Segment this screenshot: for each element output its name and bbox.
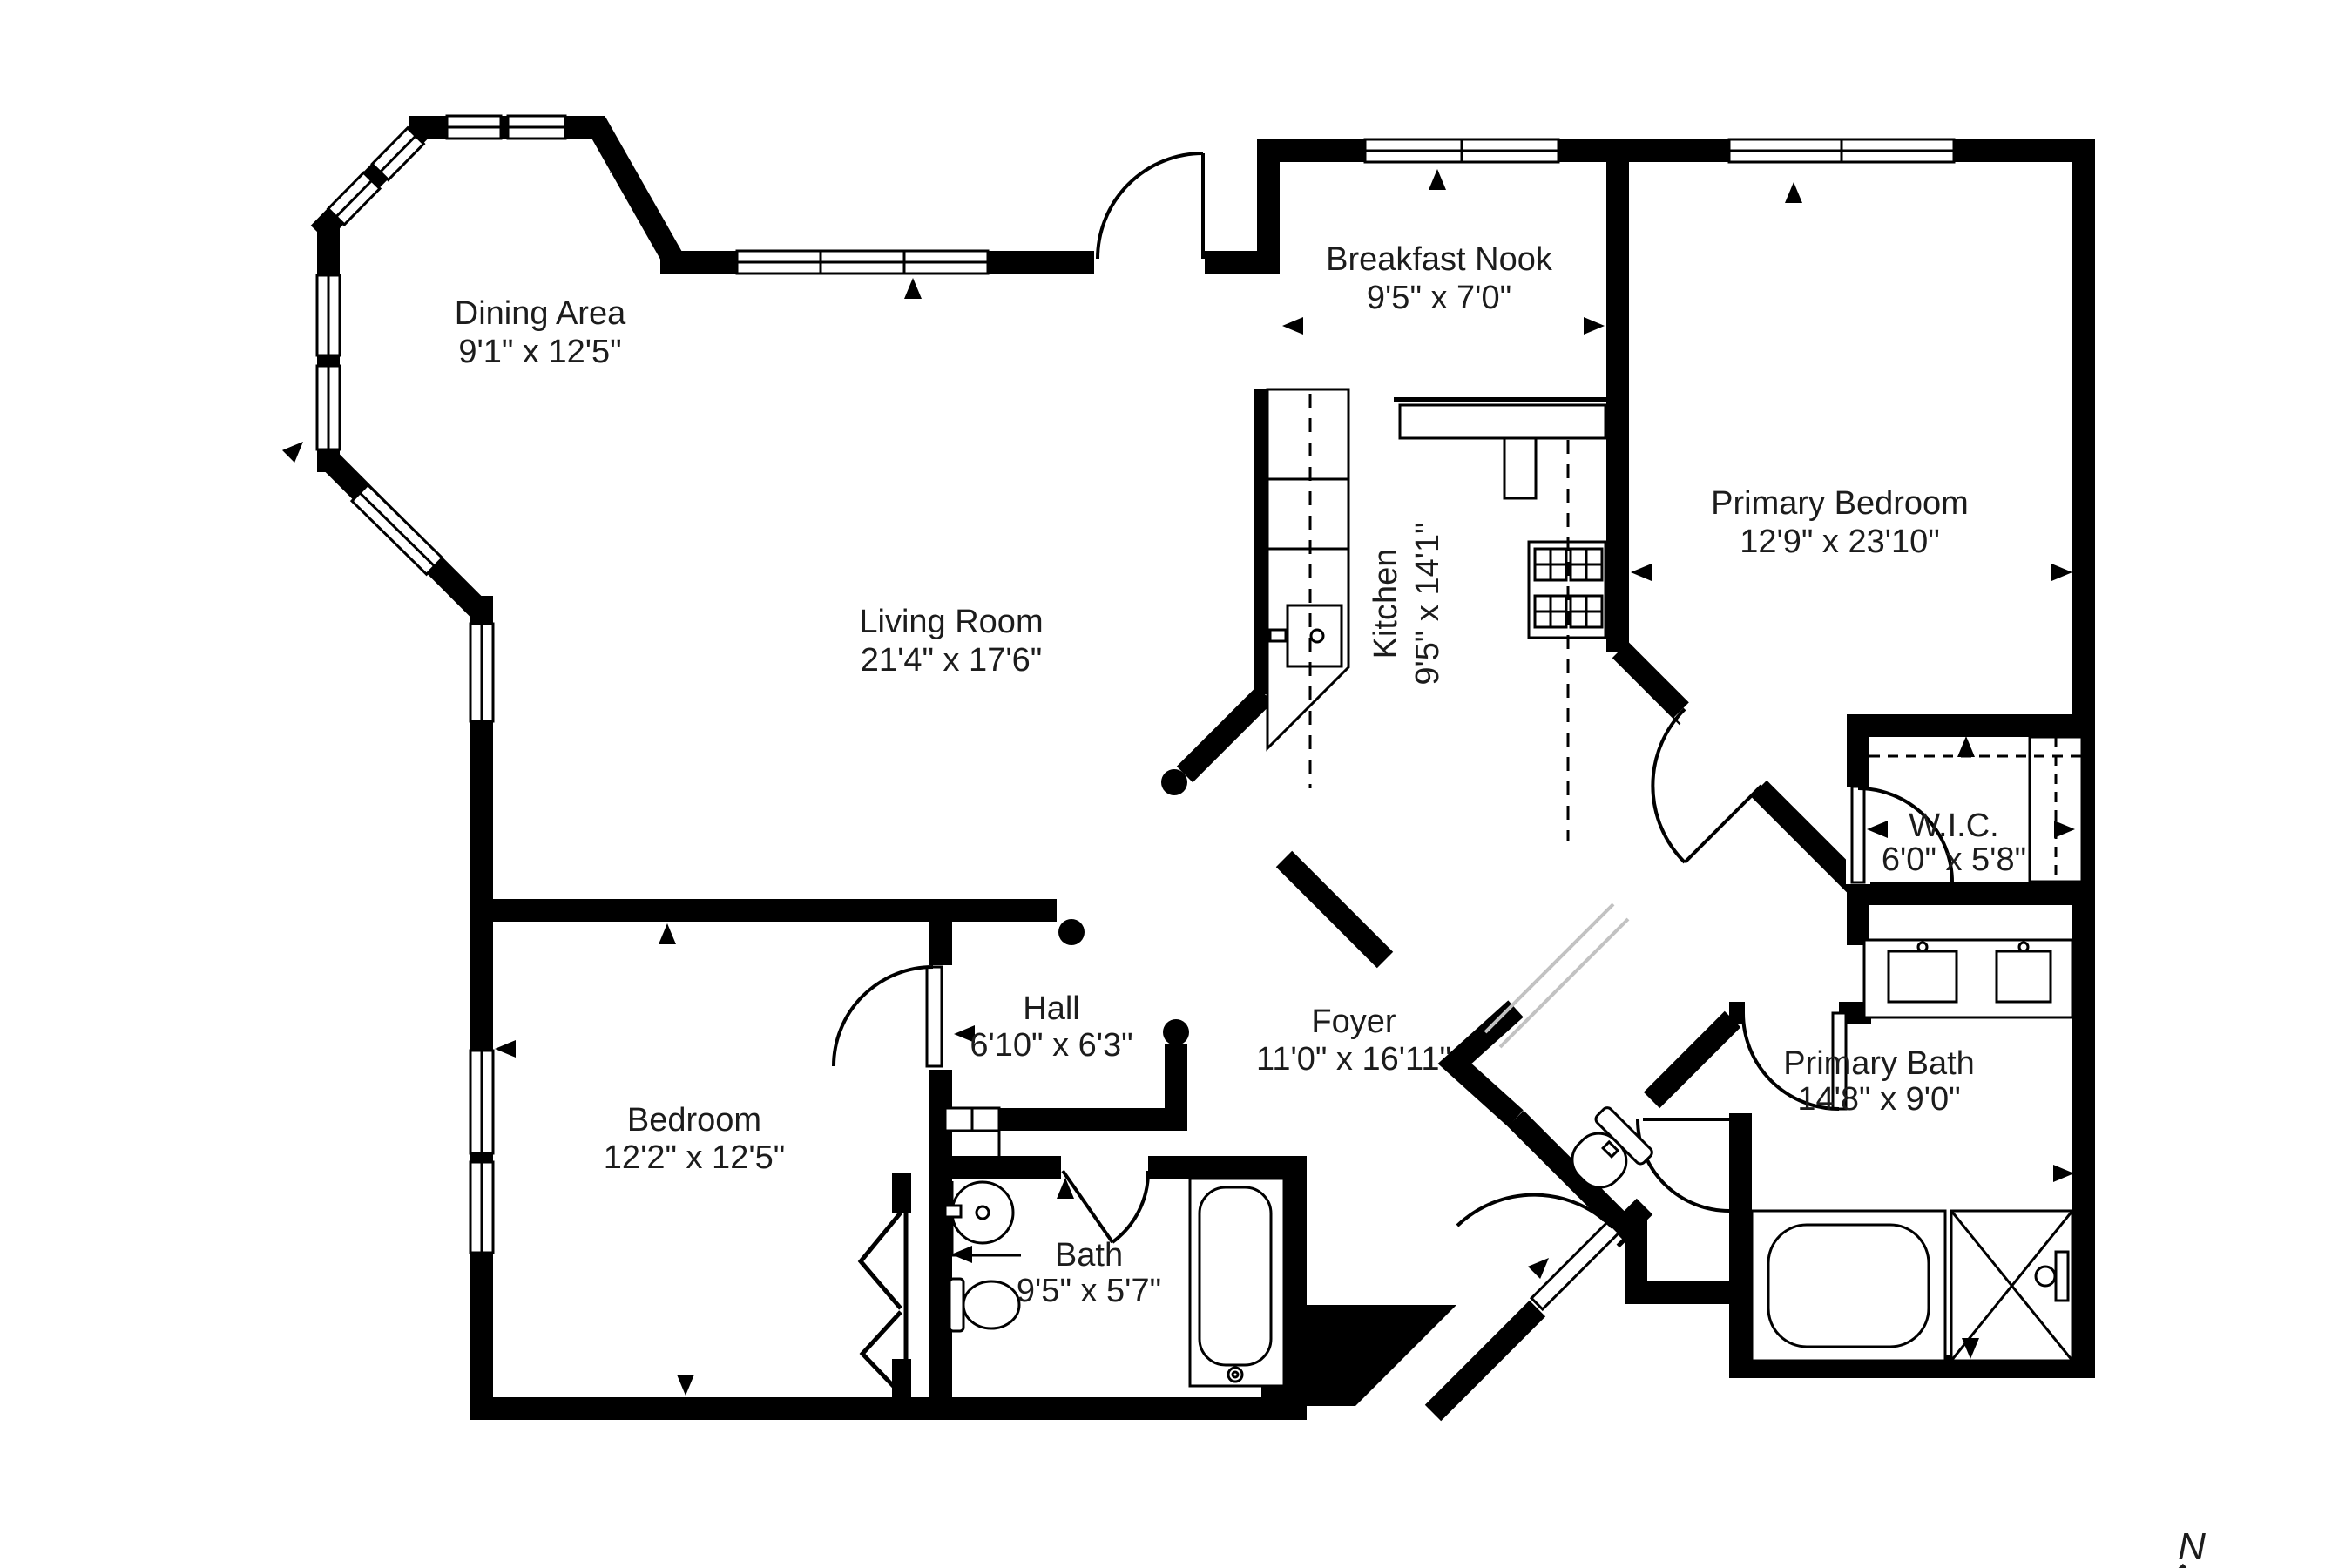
room-name: Bedroom xyxy=(627,1102,761,1139)
vanity-sink-left xyxy=(1889,951,1957,1002)
room-dims: 6'10" x 6'3" xyxy=(970,1027,1132,1064)
vanity-sink-right xyxy=(1997,951,2051,1002)
room-name: Primary Bedroom xyxy=(1711,485,1969,522)
room-label-bath: Bath 9'5" x 5'7" xyxy=(1017,1237,1161,1309)
bedroom-left-windows xyxy=(470,1051,493,1253)
room-dims: 9'1" x 12'5" xyxy=(458,334,621,370)
bedroom-closet xyxy=(861,1173,906,1397)
north-arrow: N xyxy=(2149,1525,2206,1568)
room-name: W.I.C. xyxy=(1909,808,1998,844)
bath-faucet xyxy=(945,1206,961,1217)
column-dot xyxy=(1161,769,1187,795)
shower-head xyxy=(2036,1267,2055,1286)
room-label-dining-area: Dining Area 9'1" x 12'5" xyxy=(455,295,626,370)
room-label-primary-bath: Primary Bath 14'8" x 9'0" xyxy=(1783,1045,1975,1118)
room-dims: 11'0" x 16'11" xyxy=(1256,1041,1451,1078)
room-label-breakfast-nook: Breakfast Nook 9'5" x 7'0" xyxy=(1326,241,1553,316)
bath-door xyxy=(1063,1171,1148,1242)
living-top-window xyxy=(737,251,988,274)
windows xyxy=(317,116,1954,1253)
balcony-door xyxy=(1098,153,1203,259)
floor-plan-drawing: Dining Area 9'1" x 12'5" Breakfast Nook … xyxy=(0,0,2352,1568)
bathtub-primary xyxy=(1752,1211,1945,1361)
primary-bedroom-window xyxy=(1729,139,1954,162)
kitchen-counter-top xyxy=(1400,405,1605,438)
kitchen-counter-tab xyxy=(1504,438,1536,498)
kitchen-faucet xyxy=(1270,630,1286,641)
hall-closet-door xyxy=(945,1108,999,1131)
doors xyxy=(834,153,1952,1309)
room-name: Dining Area xyxy=(455,295,626,332)
room-label-living-room: Living Room 21'4" x 17'6" xyxy=(859,604,1043,679)
room-dims: 9'5" x 5'7" xyxy=(1017,1273,1161,1309)
north-label: N xyxy=(2178,1525,2206,1568)
room-dims: 9'5" x 7'0" xyxy=(1367,280,1511,316)
shower-valve xyxy=(2056,1252,2068,1301)
bay-window-sw xyxy=(352,485,443,575)
room-labels: Dining Area 9'1" x 12'5" Breakfast Nook … xyxy=(455,241,2026,1309)
toilet-nook-door xyxy=(1638,1119,1729,1211)
room-name: Bath xyxy=(1055,1237,1123,1274)
room-name: Breakfast Nook xyxy=(1326,241,1553,278)
room-name: Living Room xyxy=(859,604,1043,640)
room-dims: 21'4" x 17'6" xyxy=(861,642,1042,679)
floor-plan-page: Dining Area 9'1" x 12'5" Breakfast Nook … xyxy=(0,0,2352,1568)
room-label-primary-bedroom: Primary Bedroom 12'9" x 23'10" xyxy=(1711,485,1969,560)
room-dims: 9'5" x 14'1" xyxy=(1409,522,1446,685)
room-dims: 14'8" x 9'0" xyxy=(1797,1081,1960,1118)
room-name: Foyer xyxy=(1311,1004,1396,1040)
room-label-wic: W.I.C. 6'0" x 5'8" xyxy=(1882,808,2026,878)
bathtub xyxy=(1190,1179,1284,1386)
room-name: Kitchen xyxy=(1368,549,1404,659)
room-dims: 6'0" x 5'8" xyxy=(1882,841,2026,878)
entry-wall-mass xyxy=(1261,1305,1456,1406)
nook-top-window xyxy=(1365,139,1558,162)
toilet-bath xyxy=(950,1279,1019,1331)
room-dims: 12'2" x 12'5" xyxy=(604,1139,785,1176)
column-dot xyxy=(1058,919,1085,945)
room-name: Primary Bath xyxy=(1783,1045,1975,1082)
bedroom-door xyxy=(834,967,942,1066)
column-dot xyxy=(1163,1019,1189,1045)
kitchen-counter-left xyxy=(1267,389,1348,748)
room-label-kitchen: Kitchen 9'5" x 14'1" xyxy=(1368,522,1446,685)
room-label-hall: Hall 6'10" x 6'3" xyxy=(970,990,1132,1064)
room-name: Hall xyxy=(1023,990,1079,1027)
living-left-window xyxy=(470,624,493,721)
entry-door xyxy=(1457,1195,1619,1309)
room-dims: 12'9" x 23'10" xyxy=(1740,524,1940,560)
room-label-foyer: Foyer 11'0" x 16'11" xyxy=(1256,1004,1451,1078)
bifold-door xyxy=(861,1213,901,1308)
room-label-bedroom: Bedroom 12'2" x 12'5" xyxy=(604,1102,785,1176)
